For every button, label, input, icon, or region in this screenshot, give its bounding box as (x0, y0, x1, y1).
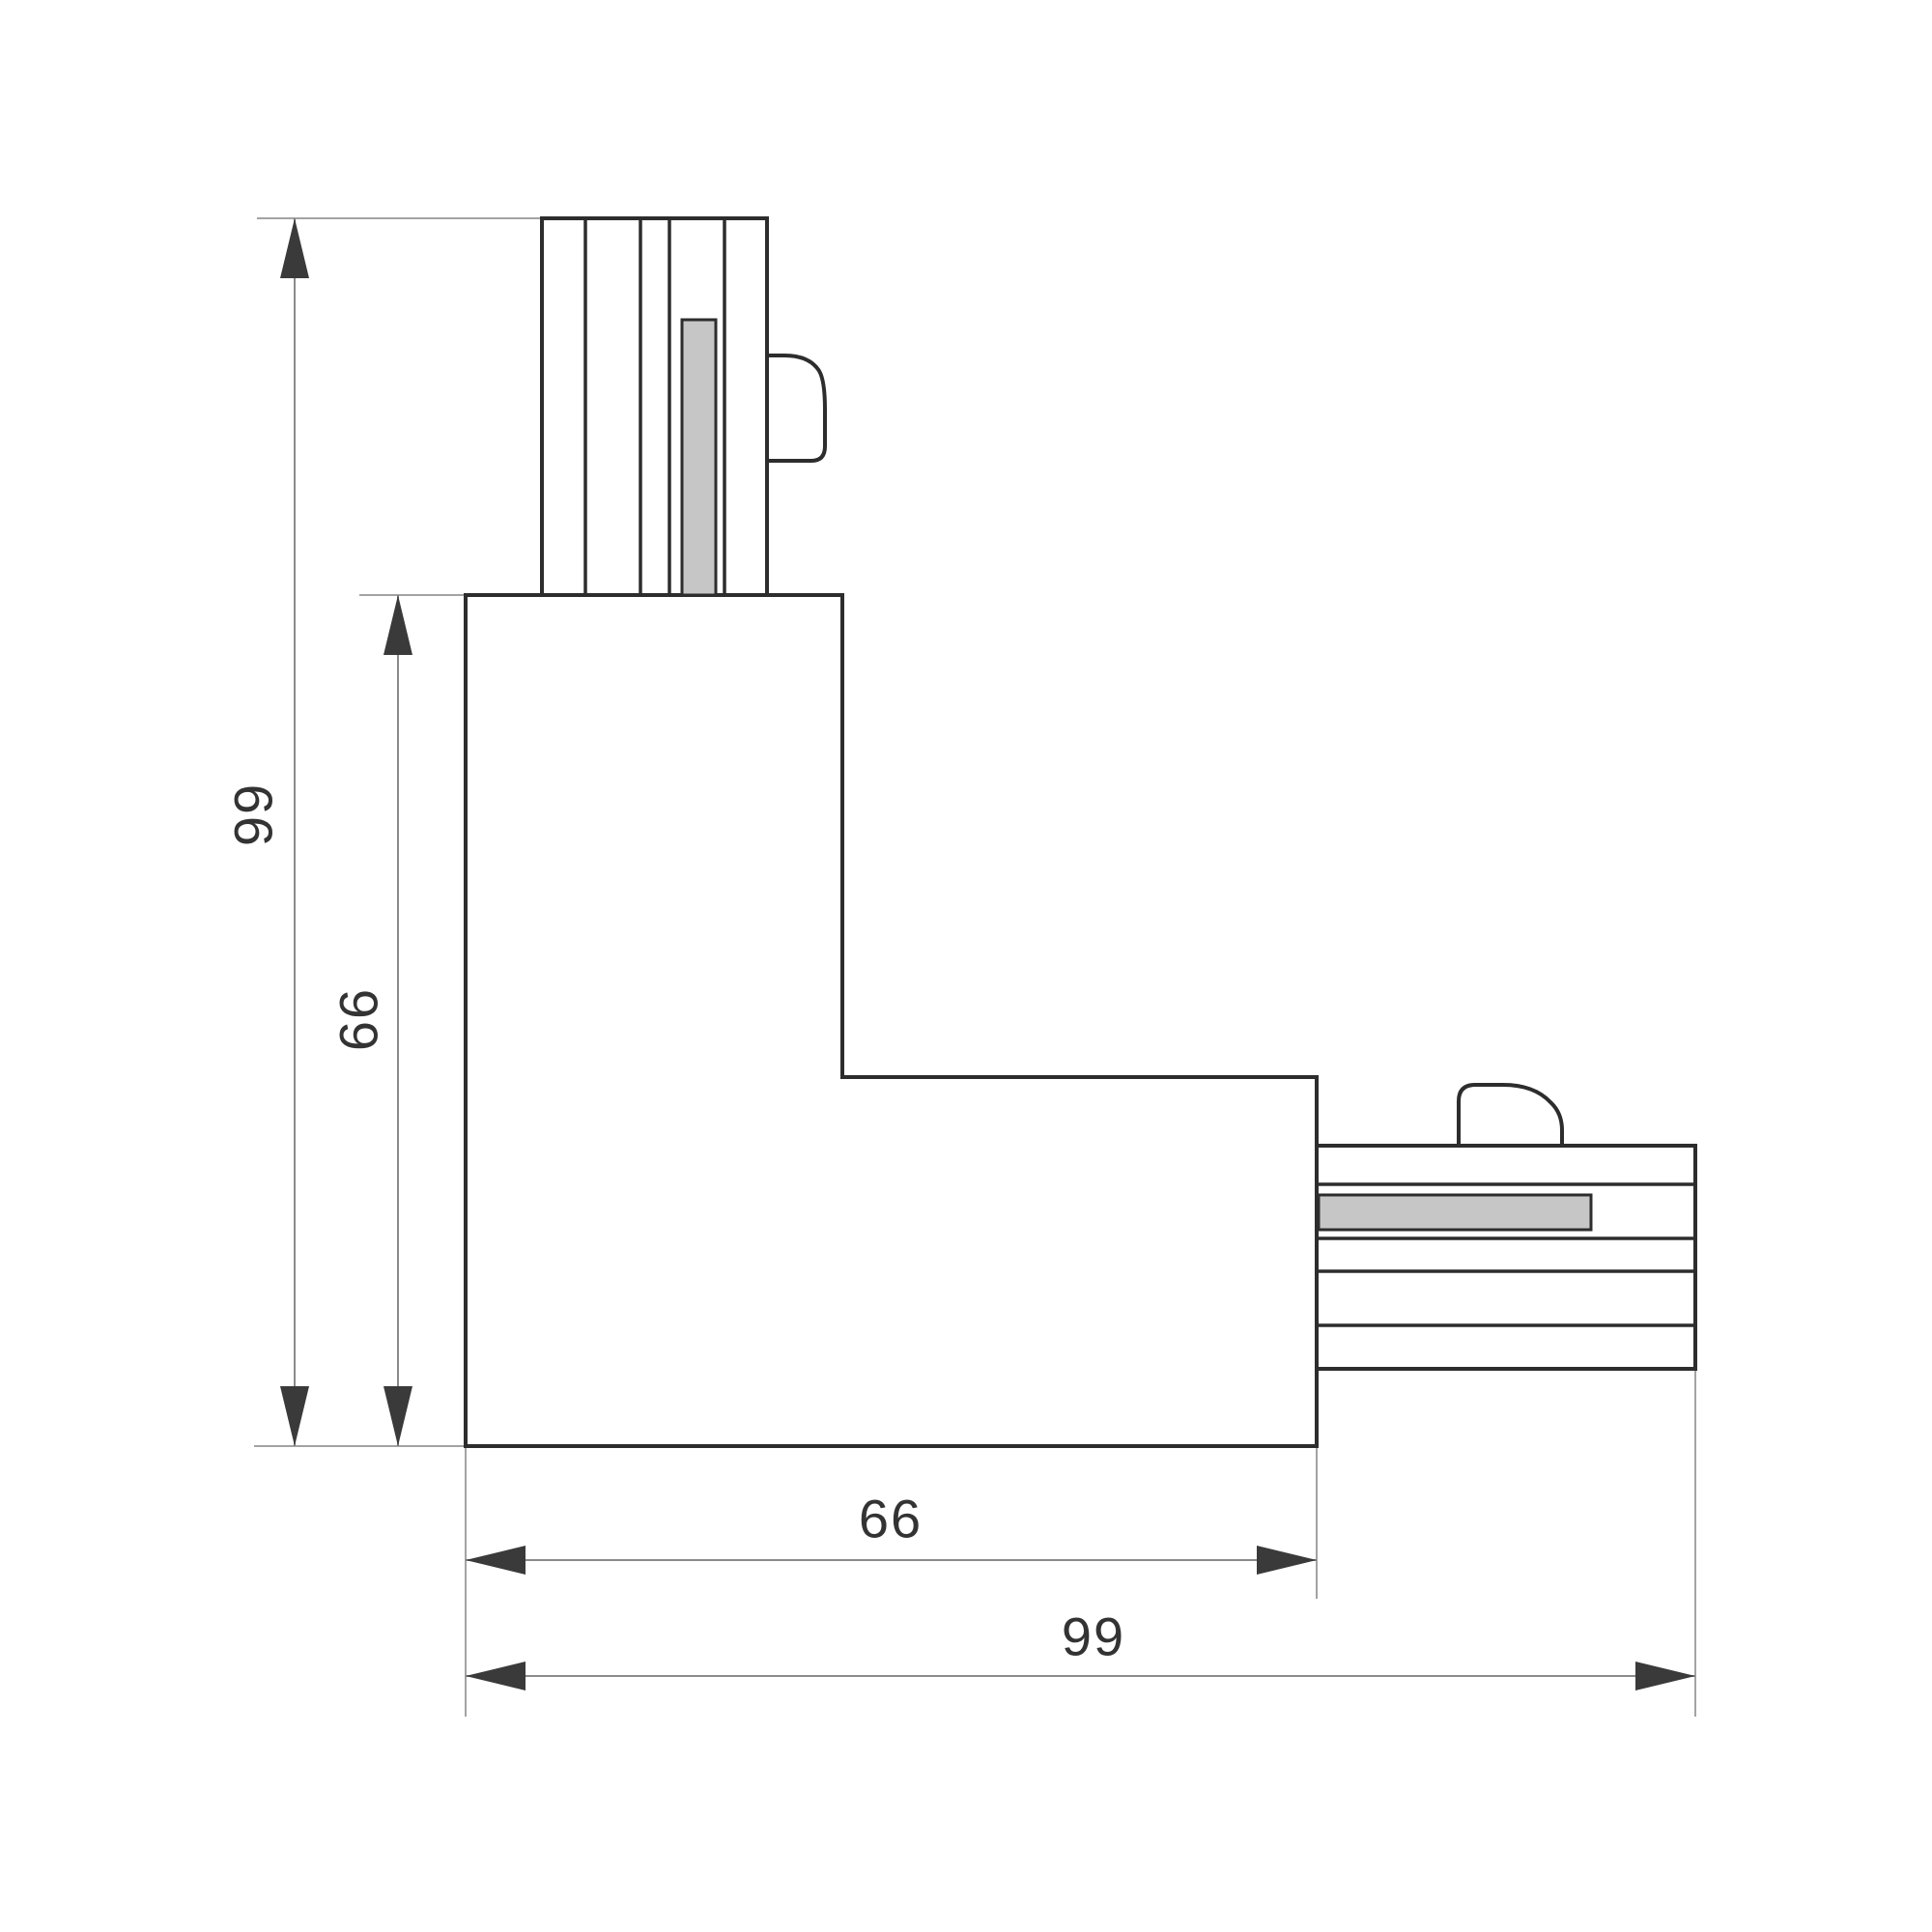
dim-body-height: 66 (328, 595, 413, 1446)
arrowhead-left (466, 1662, 526, 1690)
top-connector (542, 218, 825, 595)
arrowhead-up (384, 595, 412, 655)
dimension-layer: 99 66 66 99 (223, 218, 1696, 1717)
right-connector-housing (1317, 1146, 1695, 1369)
top-connector-housing (542, 218, 767, 595)
dim-overall-height: 99 (223, 218, 310, 1446)
arrowhead-right (1257, 1546, 1317, 1575)
top-connector-latch (768, 355, 825, 461)
part-layer (466, 218, 1695, 1446)
dim-label-body-width: 66 (859, 1489, 923, 1549)
arrowhead-up (280, 218, 309, 278)
arrowhead-down (280, 1386, 309, 1446)
arrowhead-left (466, 1546, 526, 1575)
right-connector-latch (1459, 1085, 1562, 1146)
right-connector (1317, 1085, 1695, 1369)
body-outline (466, 595, 1317, 1446)
technical-drawing-canvas: 99 66 66 99 (0, 0, 1932, 1932)
dim-overall-width: 99 (466, 1606, 1695, 1691)
drawing-page: 99 66 66 99 (0, 0, 1932, 1932)
right-connector-contact-bar (1319, 1195, 1591, 1230)
top-connector-contact-bar (682, 320, 716, 595)
arrowhead-right (1635, 1662, 1695, 1690)
dim-label-body-height: 66 (328, 987, 389, 1051)
arrowhead-down (384, 1386, 412, 1446)
dim-body-width: 66 (466, 1489, 1317, 1576)
dim-label-overall-height: 99 (223, 782, 284, 846)
dim-label-overall-width: 99 (1062, 1606, 1125, 1667)
